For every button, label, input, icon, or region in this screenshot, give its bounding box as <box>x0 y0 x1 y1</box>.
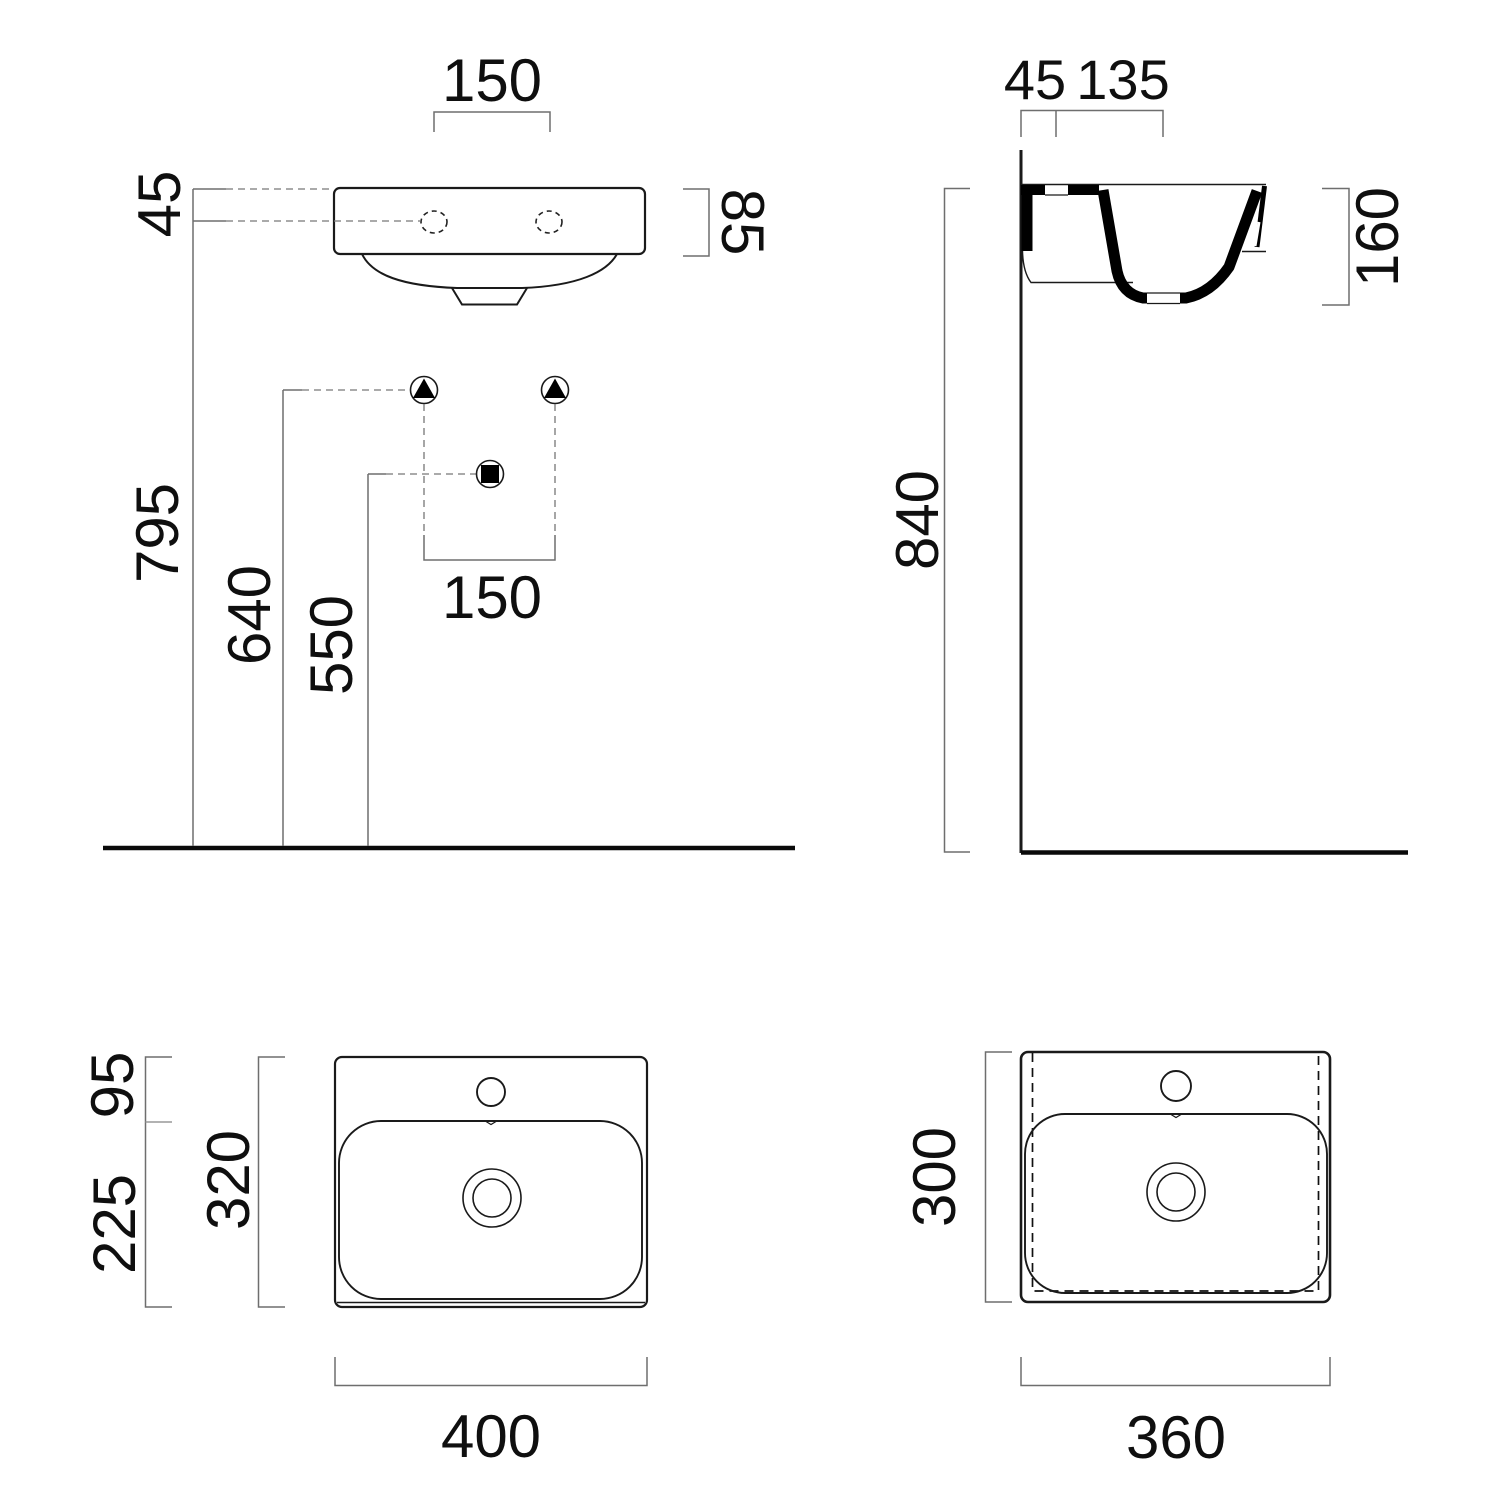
dim-bracket-95-225 <box>146 1057 173 1307</box>
dim-bracket-400 <box>335 1357 647 1386</box>
side-section-view <box>945 111 1409 854</box>
bottom-view <box>986 1052 1331 1386</box>
dim-label-rim-to-floor: 840 <box>888 470 948 570</box>
dim-bracket-320 <box>259 1057 286 1307</box>
section-bowl-profile <box>1103 190 1257 298</box>
waste-outlet-icon <box>477 461 504 488</box>
drain-boss-outline <box>452 288 527 305</box>
water-supply-icon-left <box>411 377 438 404</box>
dim-label-waste-to-floor: 550 <box>302 595 362 695</box>
dim-label-wall-to-holes: 45 <box>1004 52 1066 108</box>
dim-label-inner-depth: 320 <box>199 1130 259 1230</box>
dim-label-supply-spacing: 150 <box>442 568 542 628</box>
technical-drawing-sheet: 150 45 85 795 640 550 150 45 135 160 840… <box>0 0 1500 1500</box>
dim-bracket-45-135 <box>1021 111 1163 138</box>
dim-label-hole-spacing-top: 150 <box>442 51 542 111</box>
dim-label-overall-width-top: 400 <box>441 1407 541 1467</box>
dim-label-rim-to-holes: 45 <box>130 171 190 238</box>
dim-label-overall-width-bottom: 360 <box>1126 1408 1226 1468</box>
water-supply-icon-right <box>542 377 569 404</box>
bowl-underside-outline <box>362 254 617 288</box>
dim-label-holes-to-front: 135 <box>1076 52 1169 108</box>
dim-bracket-hole-spacing <box>434 112 550 132</box>
dim-label-rim-height: 85 <box>712 189 772 256</box>
dim-label-supply-to-floor: 640 <box>220 565 280 665</box>
front-view <box>103 112 795 848</box>
dim-label-back-ledge: 95 <box>83 1052 143 1119</box>
dim-label-holes-to-floor: 795 <box>128 483 188 583</box>
dim-bracket-300 <box>986 1052 1013 1302</box>
dim-label-overall-depth: 300 <box>905 1127 965 1227</box>
dim-label-rim-to-trap: 160 <box>1348 187 1408 287</box>
basin-top-outline <box>335 1057 647 1307</box>
basin-bottom-outline <box>1021 1052 1330 1302</box>
dim-bracket-360 <box>1021 1357 1330 1386</box>
dim-bracket-supply-spacing <box>424 535 555 560</box>
basin-front-outline <box>334 188 645 254</box>
dim-bracket-rim-height <box>683 189 709 256</box>
dim-label-bowl-depth: 225 <box>85 1174 145 1274</box>
